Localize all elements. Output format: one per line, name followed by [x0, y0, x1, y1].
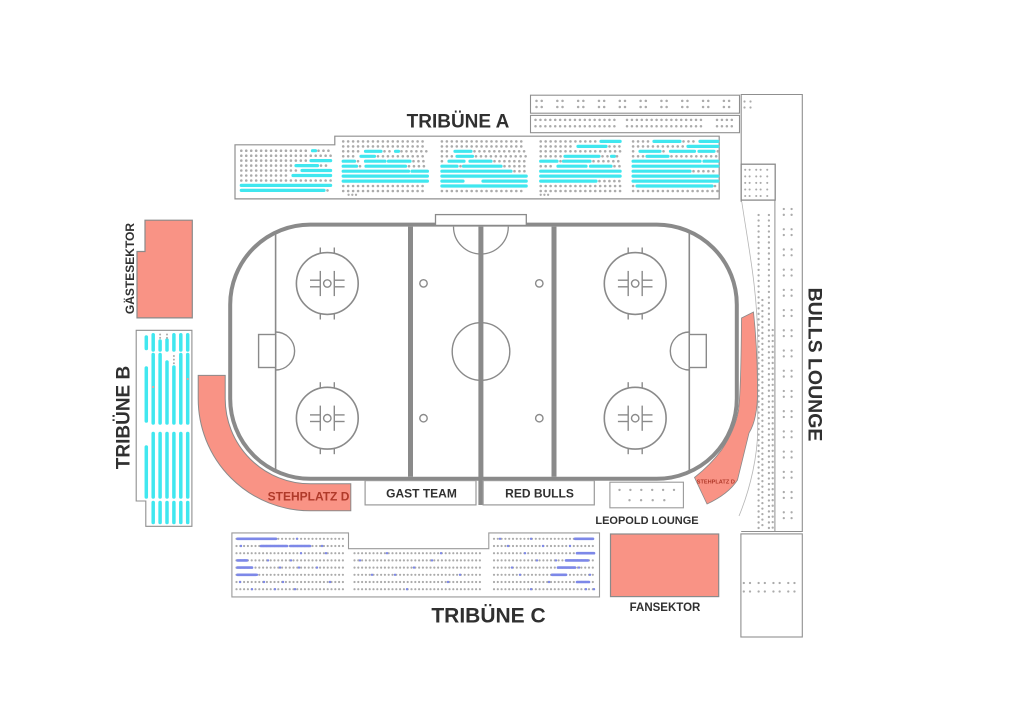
- svg-text:LEOPOLD LOUNGE: LEOPOLD LOUNGE: [595, 515, 698, 527]
- svg-text:GÄSTESEKTOR: GÄSTESEKTOR: [122, 223, 137, 314]
- svg-text:TRIBÜNE C: TRIBÜNE C: [431, 605, 545, 628]
- svg-text:STEHPLATZ D: STEHPLATZ D: [268, 490, 350, 504]
- svg-text:GAST TEAM: GAST TEAM: [386, 487, 457, 501]
- svg-text:BULLS LOUNGE: BULLS LOUNGE: [804, 288, 826, 442]
- svg-text:STEHPLATZ D: STEHPLATZ D: [697, 480, 735, 486]
- svg-text:RED BULLS: RED BULLS: [505, 487, 574, 501]
- svg-text:TRIBÜNE A: TRIBÜNE A: [407, 112, 510, 133]
- svg-text:FANSEKTOR: FANSEKTOR: [630, 602, 701, 614]
- svg-text:TRIBÜNE B: TRIBÜNE B: [114, 366, 135, 469]
